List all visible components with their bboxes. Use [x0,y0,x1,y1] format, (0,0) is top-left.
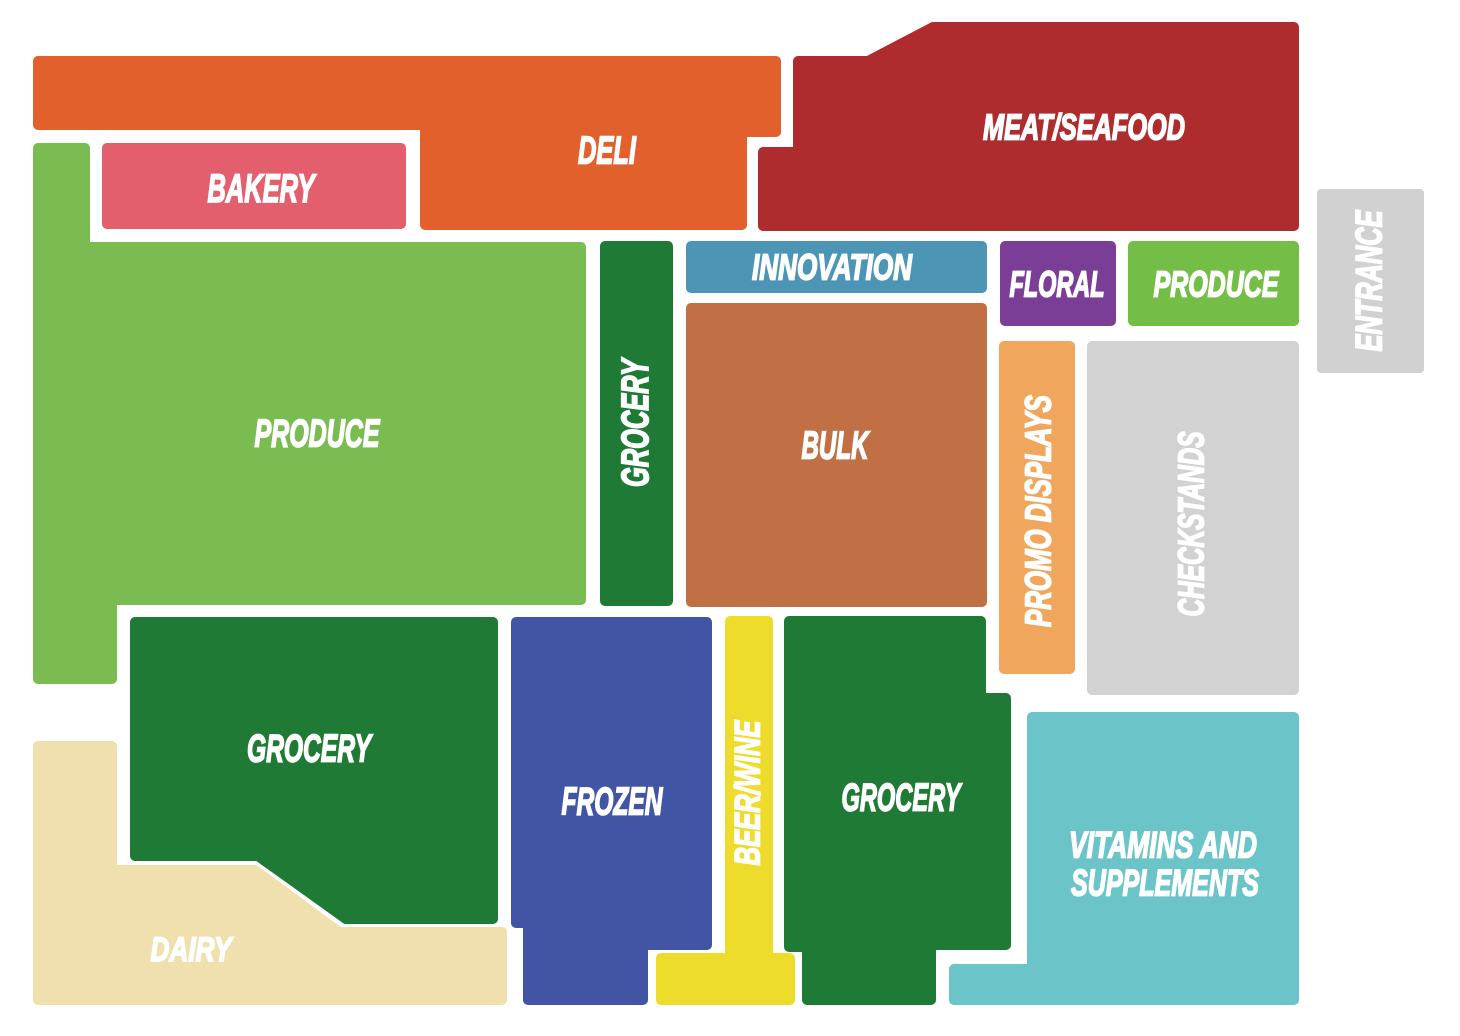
svg-text:FLORAL: FLORAL [1010,264,1105,305]
svg-text:INNOVATION: INNOVATION [752,247,913,288]
svg-text:DAIRY: DAIRY [151,931,235,969]
svg-text:PRODUCE: PRODUCE [255,413,381,456]
svg-text:PRODUCE: PRODUCE [1154,264,1280,305]
svg-text:PROMO DISPLAYS: PROMO DISPLAYS [1018,395,1059,627]
svg-text:MEAT/SEAFOOD: MEAT/SEAFOOD [983,107,1185,148]
svg-text:ENTRANCE: ENTRANCE [1349,210,1390,352]
svg-text:VITAMINS AND: VITAMINS AND [1069,825,1257,866]
svg-text:SUPPLEMENTS: SUPPLEMENTS [1071,863,1259,904]
svg-text:GROCERY: GROCERY [615,357,657,487]
svg-text:BEER/WINE: BEER/WINE [729,719,768,865]
svg-text:DELI: DELI [578,130,637,173]
svg-text:BULK: BULK [802,425,871,468]
svg-text:GROCERY: GROCERY [247,728,373,771]
svg-text:BAKERY: BAKERY [208,167,317,211]
svg-text:CHECKSTANDS: CHECKSTANDS [1171,432,1212,617]
svg-text:GROCERY: GROCERY [842,777,963,820]
svg-text:FROZEN: FROZEN [562,781,664,824]
